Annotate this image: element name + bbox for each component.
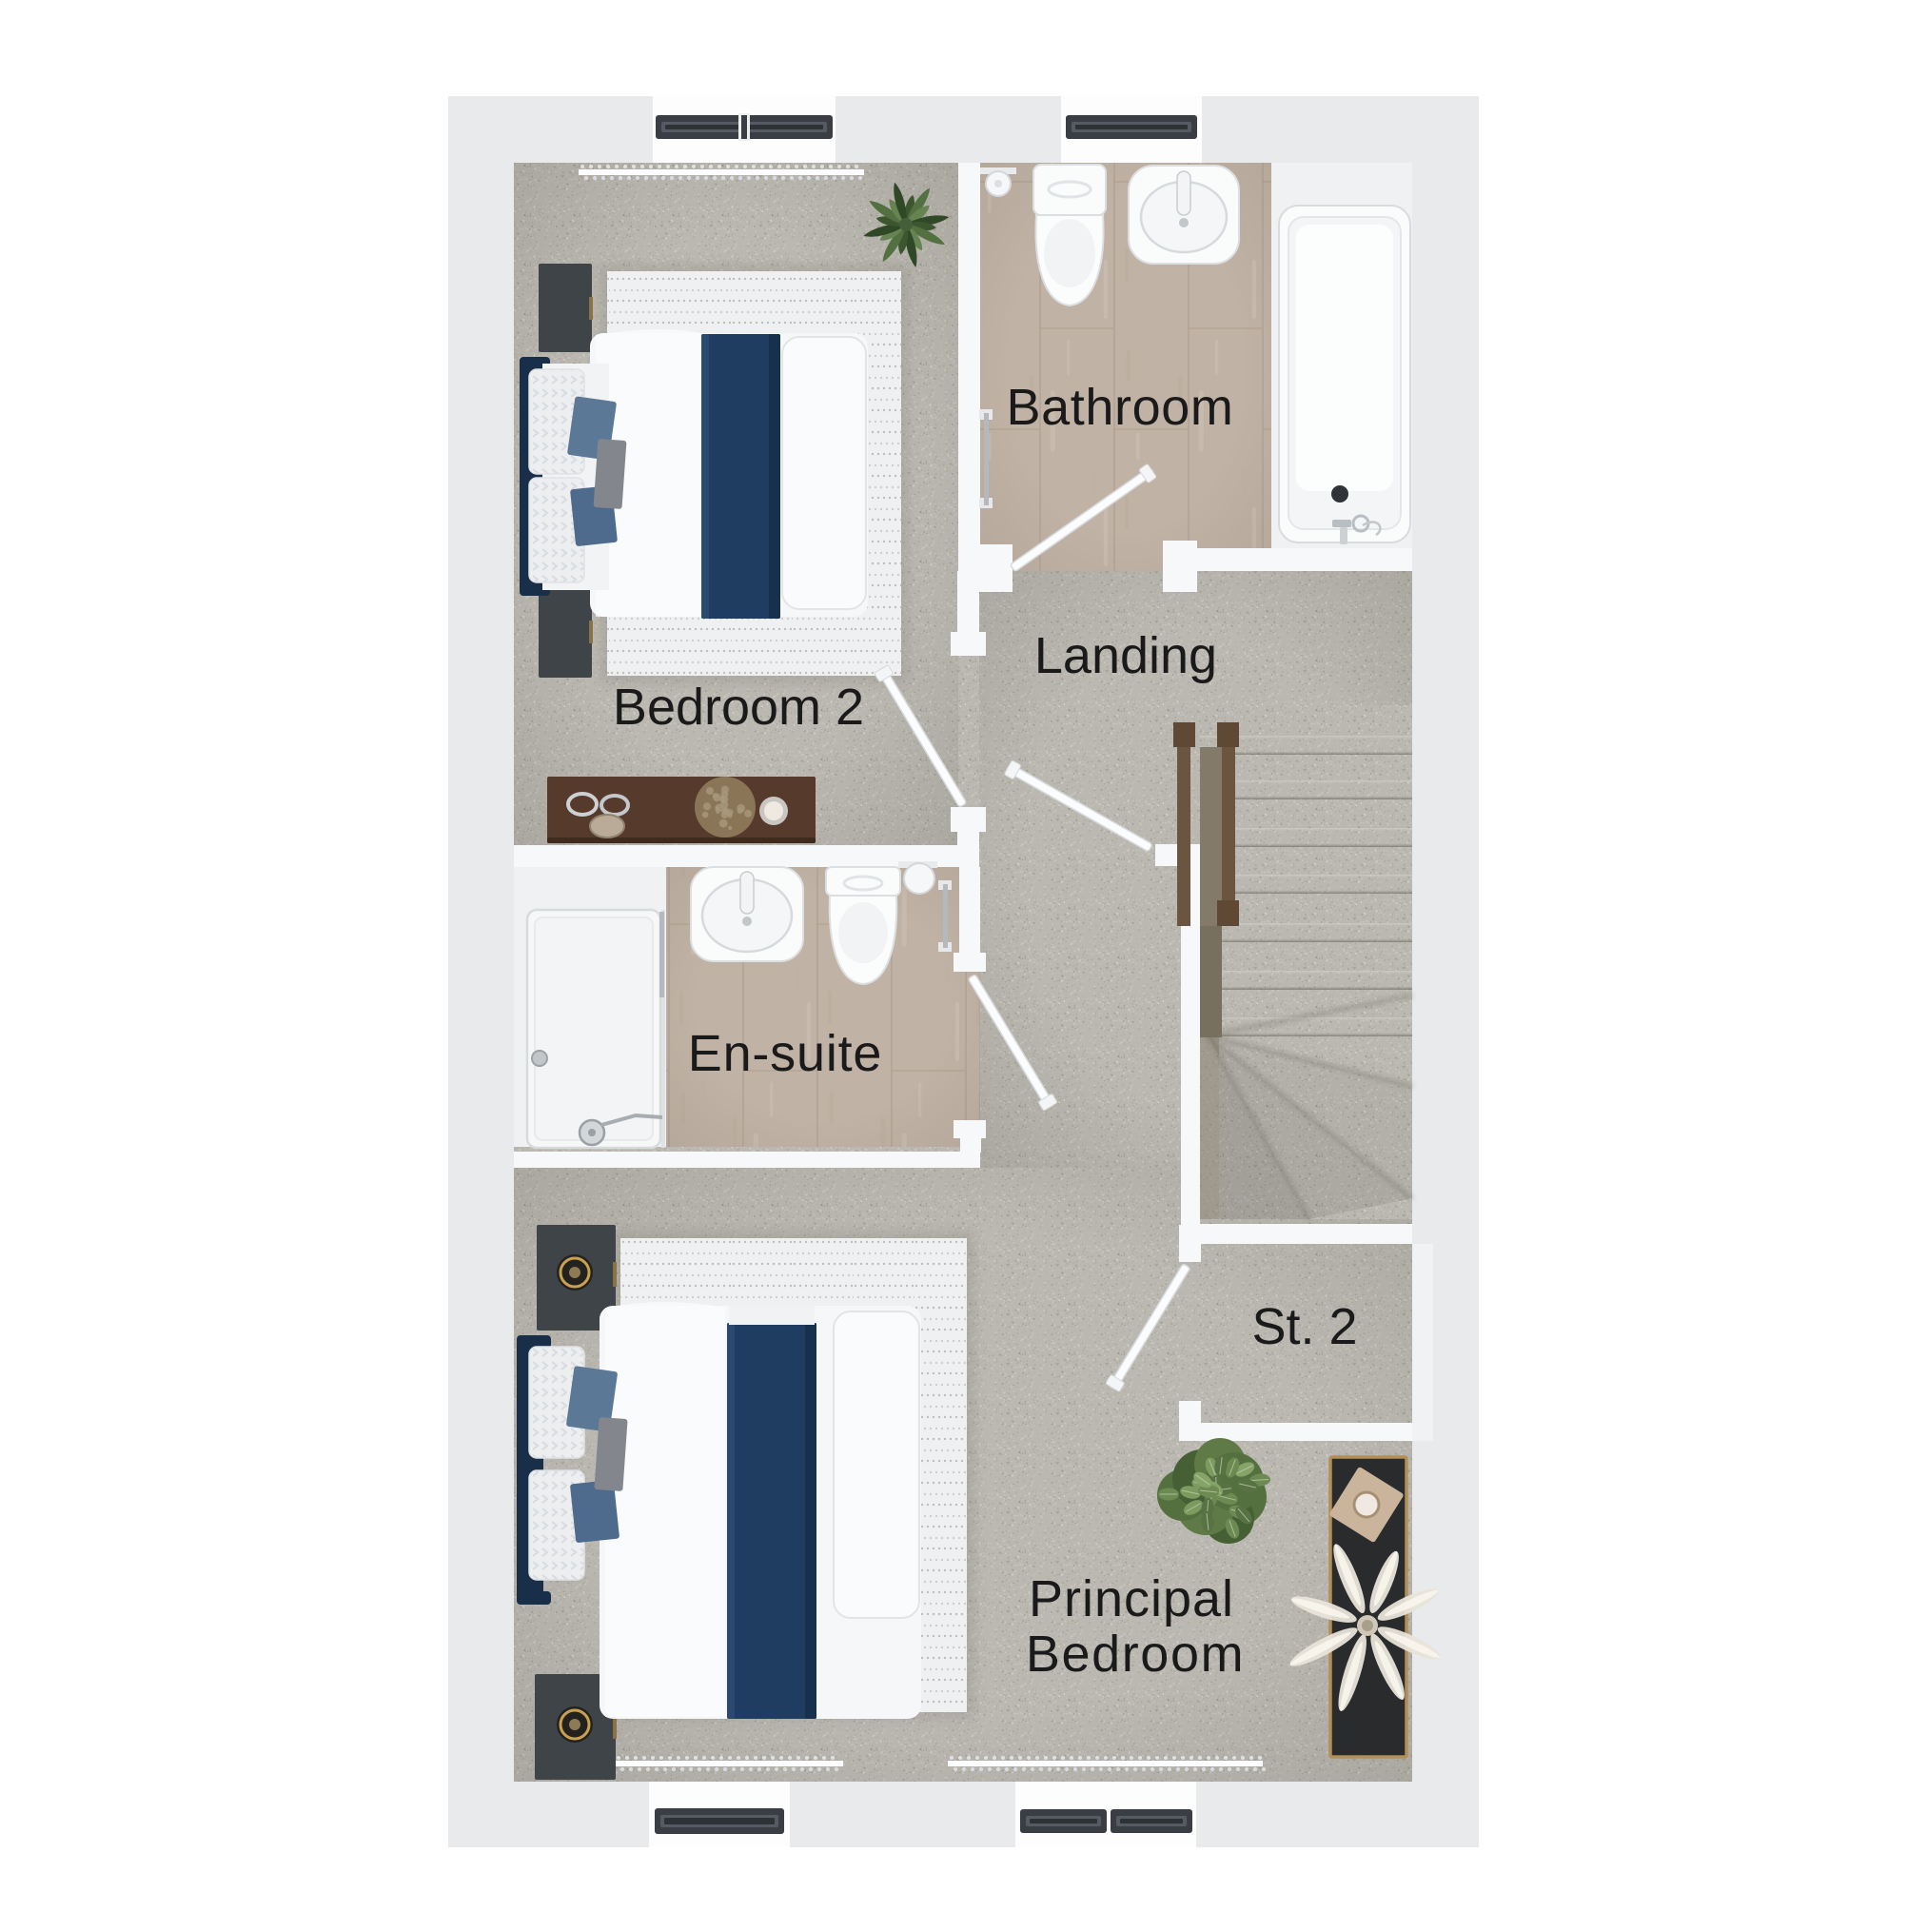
svg-text:Principal: Principal (1029, 1570, 1234, 1627)
svg-text:En-suite: En-suite (688, 1025, 883, 1082)
svg-text:Bathroom: Bathroom (1007, 379, 1234, 436)
svg-text:St. 2: St. 2 (1251, 1298, 1357, 1355)
svg-text:Bedroom: Bedroom (1026, 1626, 1245, 1683)
svg-text:Landing: Landing (1034, 627, 1217, 684)
svg-text:Bedroom 2: Bedroom 2 (613, 679, 864, 736)
